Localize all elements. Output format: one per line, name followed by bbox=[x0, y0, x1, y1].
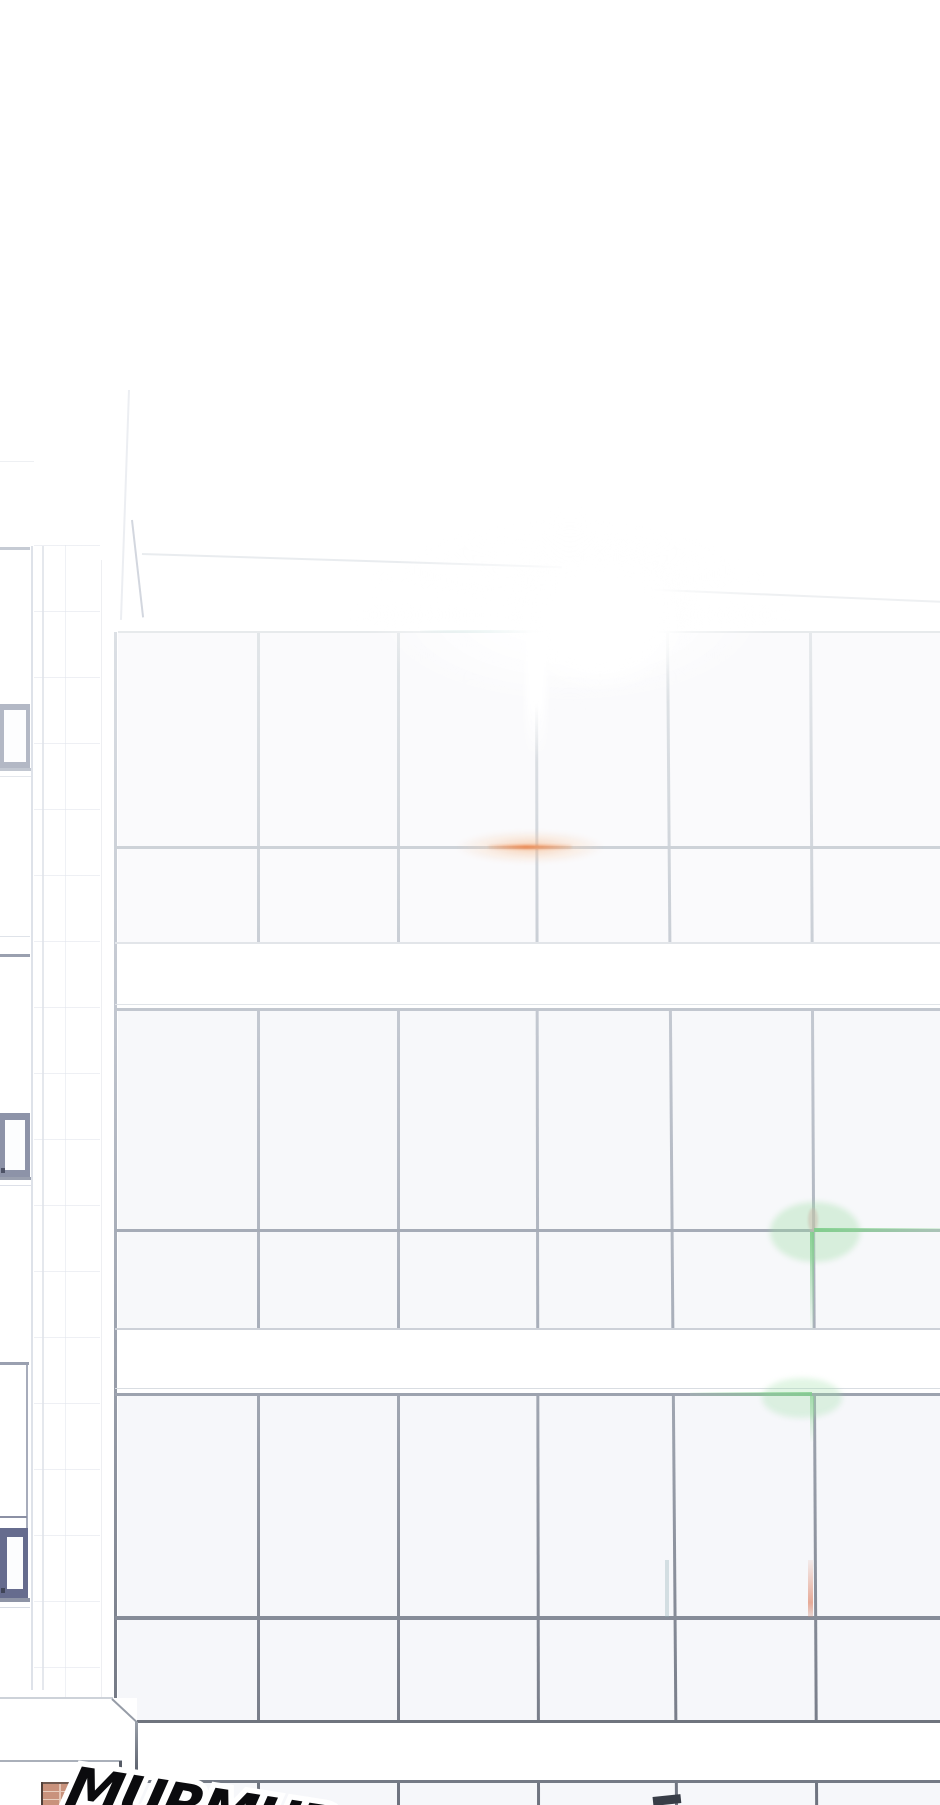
street-level bbox=[0, 0, 940, 1805]
comic-panel: MURMUR MURMUR bbox=[0, 0, 940, 1805]
ledge-top-line bbox=[0, 1697, 113, 1699]
brick-pillar-joint bbox=[59, 1783, 61, 1805]
street-dark-wedge bbox=[653, 1794, 682, 1805]
brick-pillar-left-line bbox=[41, 1782, 43, 1805]
